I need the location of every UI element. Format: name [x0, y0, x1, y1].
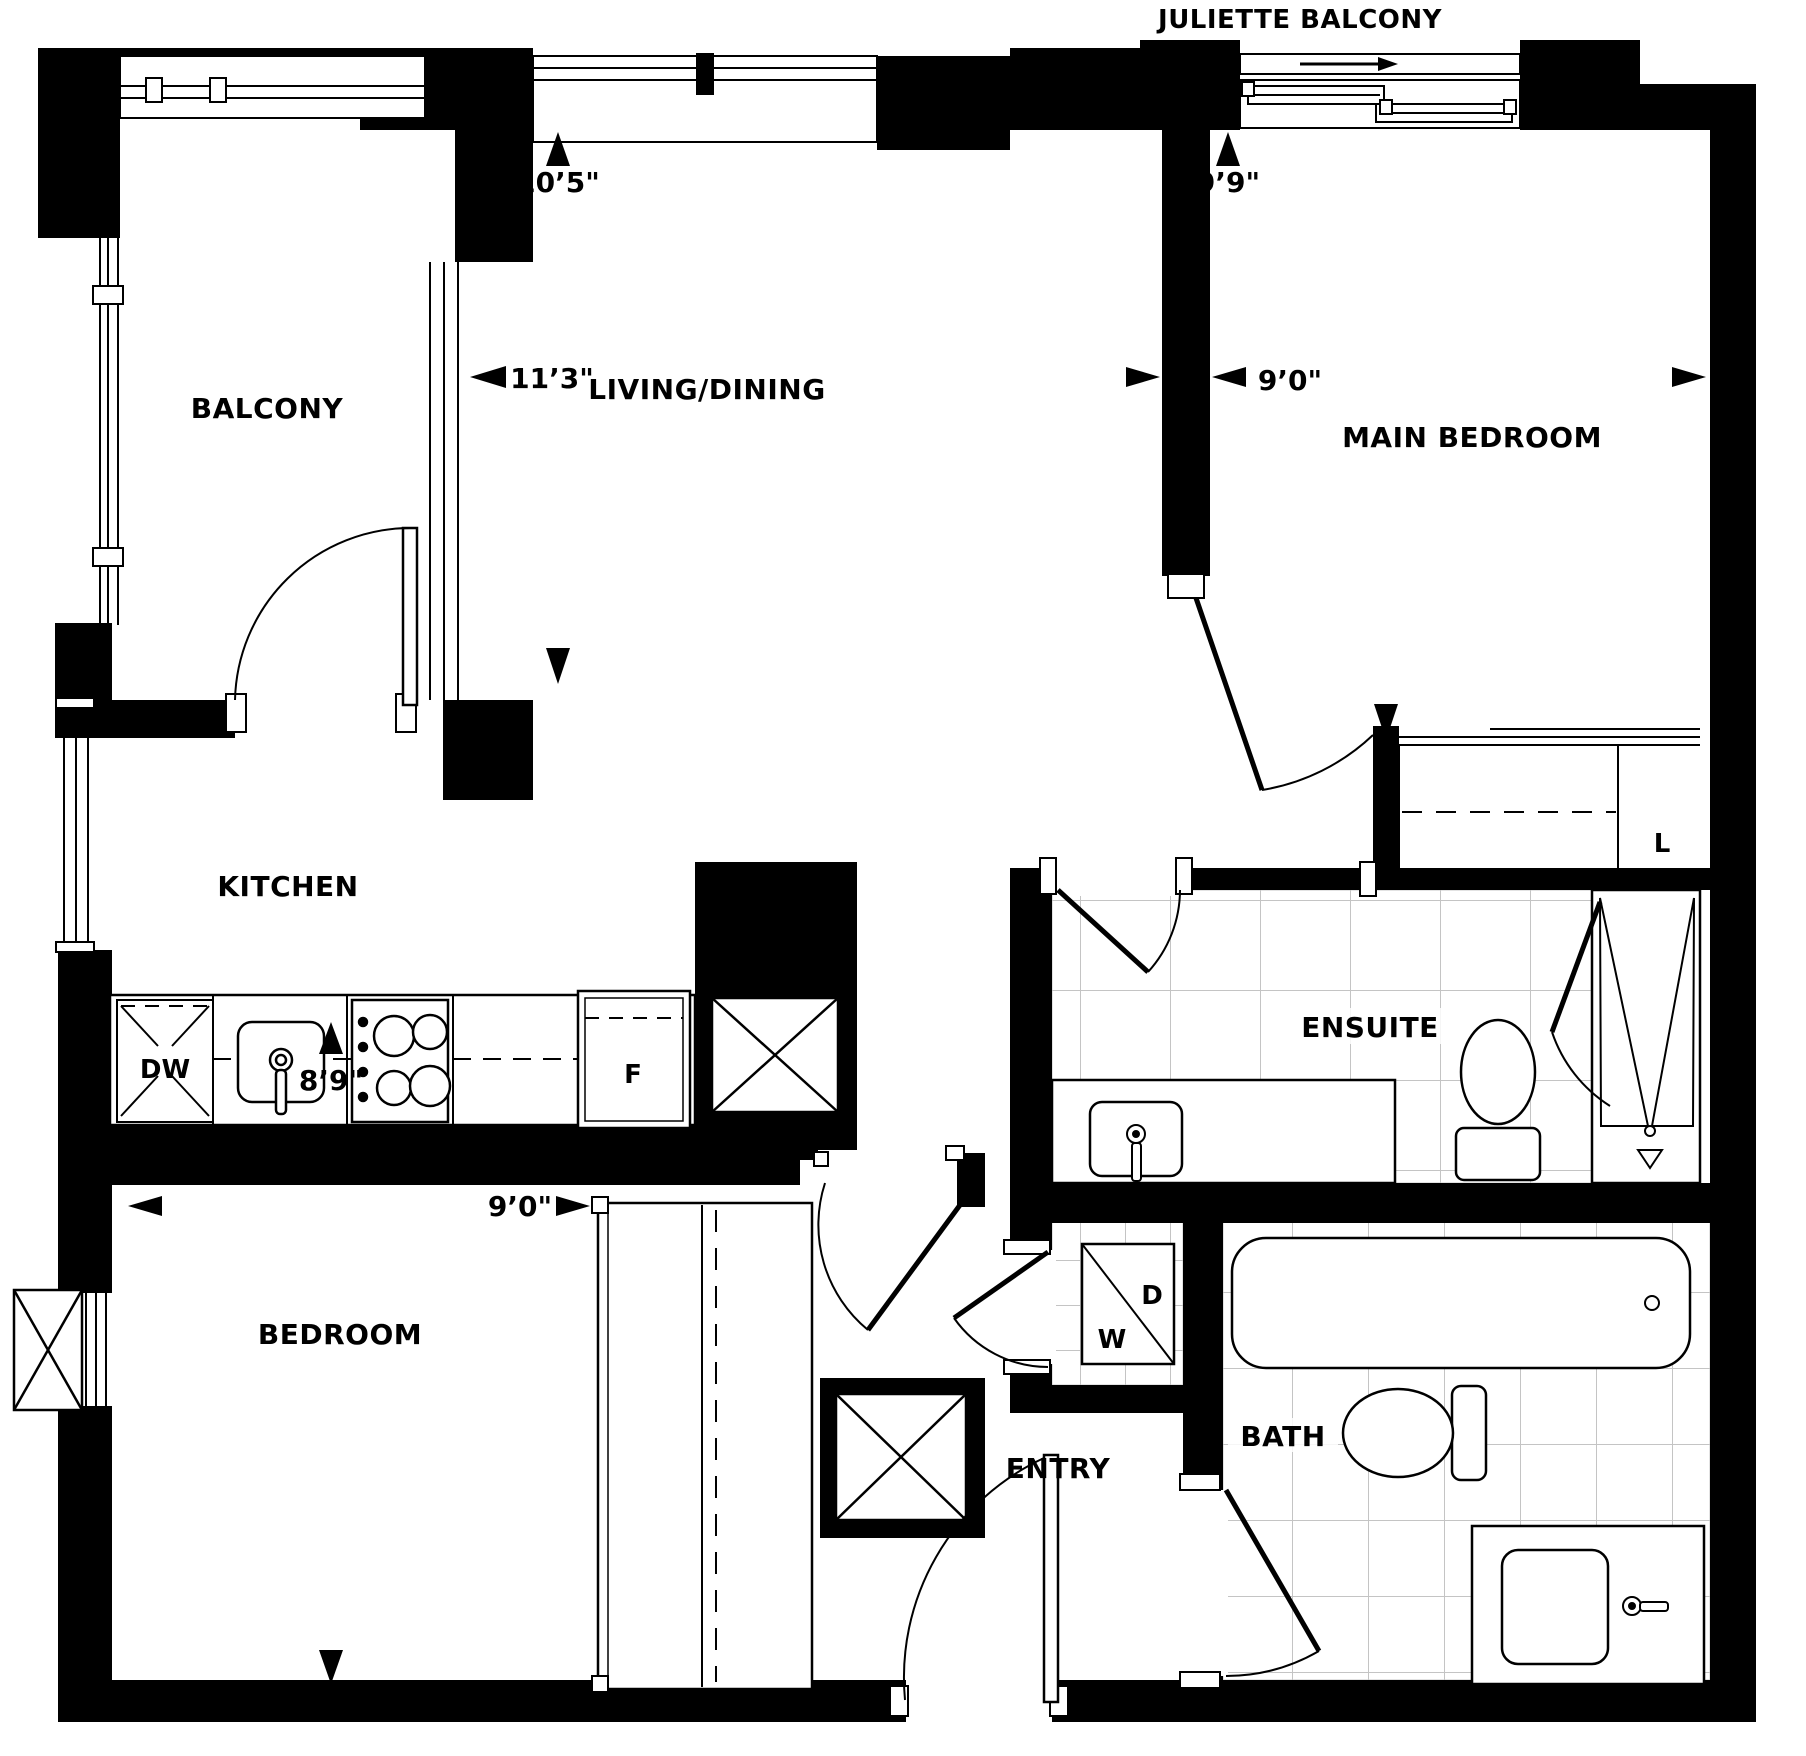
ensuite-vanity	[1052, 1080, 1395, 1183]
cooktop	[352, 1000, 450, 1122]
bedroom-closet	[592, 1197, 812, 1692]
dim-living-width: 11’3"	[510, 362, 594, 395]
floorplan-drawing: JULIETTE BALCONY BALCONY LIVING/DINING M…	[0, 0, 1806, 1756]
label-kitchen: KITCHEN	[217, 870, 358, 903]
label-balcony: BALCONY	[191, 392, 344, 425]
label-ensuite: ENSUITE	[1301, 1011, 1439, 1044]
dim-bedroom-depth: 8’9"	[299, 1064, 363, 1097]
dim-mainbed-depth: 9’9"	[1196, 166, 1260, 199]
balcony-top-railing	[120, 56, 425, 118]
floorplan-page: JULIETTE BALCONY BALCONY LIVING/DINING M…	[0, 0, 1806, 1756]
label-fridge: F	[624, 1060, 642, 1090]
label-linen-closet: L	[1654, 829, 1671, 859]
label-bedroom: BEDROOM	[258, 1318, 422, 1351]
bathtub	[1232, 1238, 1690, 1368]
label-washer: W	[1098, 1325, 1127, 1355]
label-bath: BATH	[1240, 1420, 1325, 1453]
label-entry: ENTRY	[1006, 1452, 1111, 1485]
dim-bedroom-width: 9’0"	[488, 1190, 552, 1223]
label-juliette-balcony: JULIETTE BALCONY	[1156, 5, 1443, 35]
label-living-dining: LIVING/DINING	[588, 373, 825, 406]
bath-vanity	[1472, 1526, 1704, 1684]
living-window	[533, 54, 877, 142]
label-dishwasher: DW	[140, 1055, 190, 1085]
ensuite-toilet	[1456, 1020, 1540, 1180]
label-dryer: D	[1141, 1281, 1163, 1311]
service-shaft-upper	[712, 998, 838, 1112]
dim-mainbed-width: 9’0"	[1258, 364, 1322, 397]
dim-living-depth: 10’5"	[516, 166, 600, 199]
label-main-bedroom: MAIN BEDROOM	[1342, 421, 1602, 454]
juliette-window	[1240, 54, 1520, 128]
bath-toilet	[1343, 1386, 1486, 1480]
service-shaft-lower	[836, 1394, 966, 1520]
